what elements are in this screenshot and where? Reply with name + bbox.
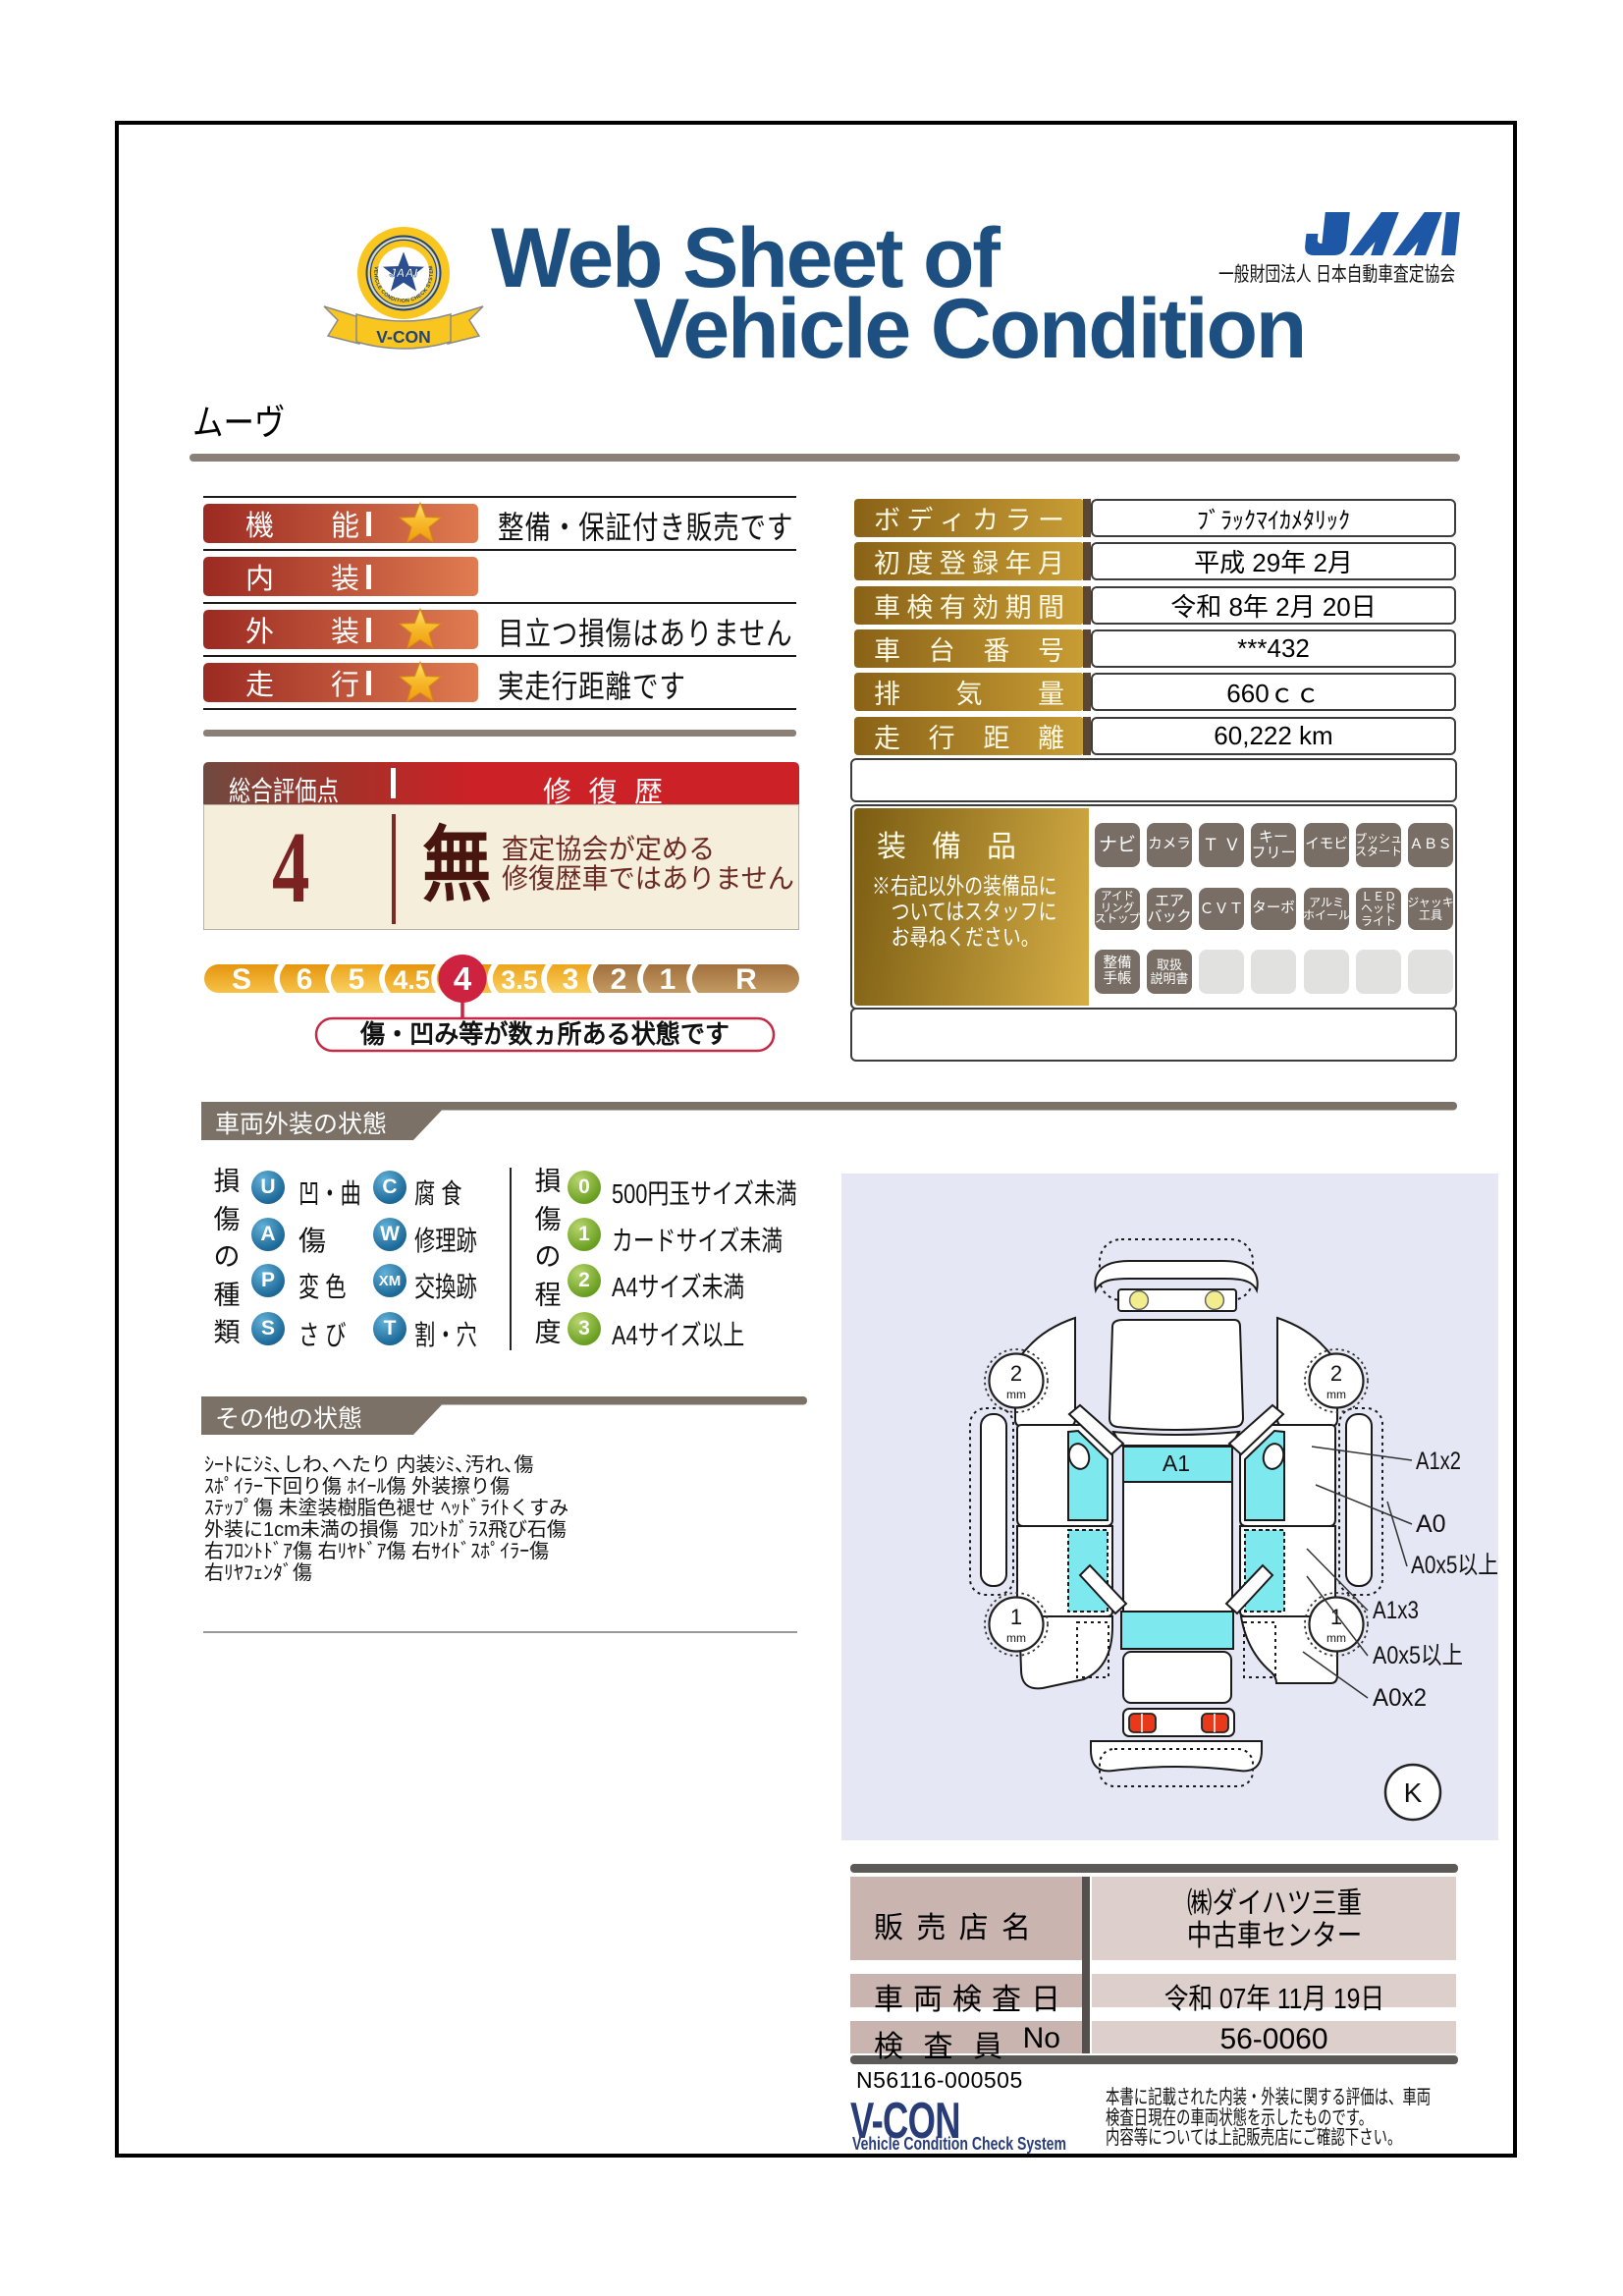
svg-text:2: 2 (1330, 1361, 1342, 1386)
svg-text:A0x5以上: A0x5以上 (1411, 1552, 1498, 1579)
svg-text:JAAI: JAAI (390, 266, 418, 280)
svg-text:1: 1 (1010, 1605, 1022, 1629)
svg-text:A0: A0 (1416, 1510, 1446, 1538)
svg-text:車両外装の状態: 車両外装の状態 (215, 1111, 387, 1138)
svg-text:3: 3 (563, 963, 579, 996)
svg-text:2: 2 (611, 963, 627, 996)
svg-text:A1x3: A1x3 (1373, 1597, 1419, 1624)
svg-text:A1: A1 (1163, 1450, 1190, 1476)
svg-text:V-CON: V-CON (376, 327, 430, 347)
svg-text:5: 5 (349, 963, 365, 996)
svg-text:A0x2: A0x2 (1373, 1684, 1427, 1712)
svg-text:2: 2 (1010, 1361, 1022, 1386)
svg-text:A1x2: A1x2 (1416, 1448, 1461, 1475)
svg-text:1: 1 (660, 963, 676, 996)
svg-text:4.5: 4.5 (393, 965, 430, 995)
svg-text:4: 4 (454, 960, 472, 997)
svg-text:R: R (735, 963, 757, 996)
svg-text:3.5: 3.5 (501, 965, 538, 995)
svg-text:傷・凹み等が数ヵ所ある状態です: 傷・凹み等が数ヵ所ある状態です (359, 1019, 730, 1049)
svg-text:mm: mm (1006, 1631, 1026, 1645)
svg-text:S: S (232, 963, 251, 996)
svg-text:mm: mm (1326, 1388, 1346, 1401)
svg-text:mm: mm (1006, 1388, 1026, 1401)
svg-text:A0x5以上: A0x5以上 (1373, 1642, 1463, 1669)
svg-text:6: 6 (297, 963, 313, 996)
svg-text:その他の状態: その他の状態 (215, 1405, 362, 1433)
svg-text:mm: mm (1326, 1631, 1346, 1645)
svg-text:K: K (1404, 1777, 1423, 1808)
